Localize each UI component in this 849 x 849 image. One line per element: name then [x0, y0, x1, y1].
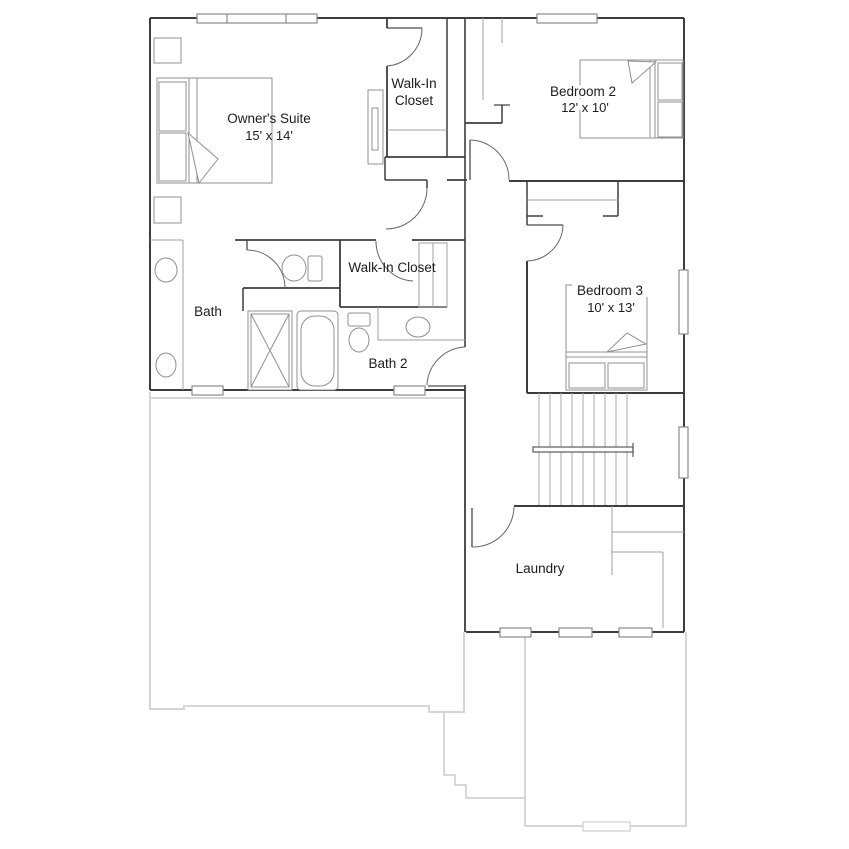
bath-sink-1 [155, 258, 177, 282]
garage-window [583, 822, 630, 831]
bedroom-3-label: Bedroom 3 [577, 283, 643, 298]
floor-plan: Owner's Suite 15' x 14' Walk-In Closet B… [0, 0, 849, 849]
walk-in-closet-2-label: Walk-In Closet [348, 260, 436, 275]
laundry-window-1 [500, 628, 531, 637]
bathtub [297, 311, 338, 390]
laundry-window-3 [619, 628, 652, 637]
laundry-window-2 [559, 628, 592, 637]
nightstand-2 [154, 197, 181, 223]
dresser [368, 90, 383, 164]
stairwell-window [679, 427, 688, 478]
nightstand-1 [154, 38, 181, 63]
owners-suite-door [386, 188, 427, 229]
owners-suite-window [197, 14, 317, 23]
closet-shelf-2 [419, 243, 447, 307]
toilet-2 [348, 313, 370, 352]
bath-wall-opening-2 [394, 386, 425, 395]
laundry-door [472, 507, 514, 547]
bath-2-label: Bath 2 [368, 356, 407, 371]
bath-sink-2 [156, 353, 176, 377]
toilet-1 [282, 255, 322, 281]
walk-in-closet-1-label-line1: Walk-In [391, 76, 436, 91]
bedroom-3-door [527, 225, 563, 261]
bedroom-3-dims: 10' x 13' [587, 300, 635, 315]
shower [248, 311, 292, 390]
owners-suite-dims: 15' x 14' [245, 128, 293, 143]
bedroom-2-window [537, 14, 597, 23]
bath-2-sink [406, 317, 430, 337]
bedroom-2-dims: 12' x 10' [561, 100, 609, 115]
water-closet-door [247, 250, 285, 288]
stair-rail [533, 447, 633, 452]
walk-in-closet-1-label-line2: Closet [395, 93, 434, 108]
owners-suite-label: Owner's Suite [227, 111, 311, 126]
laundry-closet [612, 506, 684, 628]
owners-closet-door [387, 28, 422, 66]
bath-wall-opening-1 [192, 386, 223, 395]
bath-2-door [427, 347, 465, 386]
bath-label: Bath [194, 304, 222, 319]
bedroom-2-door [470, 140, 509, 180]
stairs [533, 393, 633, 505]
bedroom-2-label: Bedroom 2 [550, 84, 616, 99]
first-floor-outline [150, 392, 686, 831]
bedroom-3-window [679, 270, 688, 334]
laundry-label: Laundry [516, 561, 565, 576]
floor-plan-drawing: Owner's Suite 15' x 14' Walk-In Closet B… [0, 0, 849, 849]
